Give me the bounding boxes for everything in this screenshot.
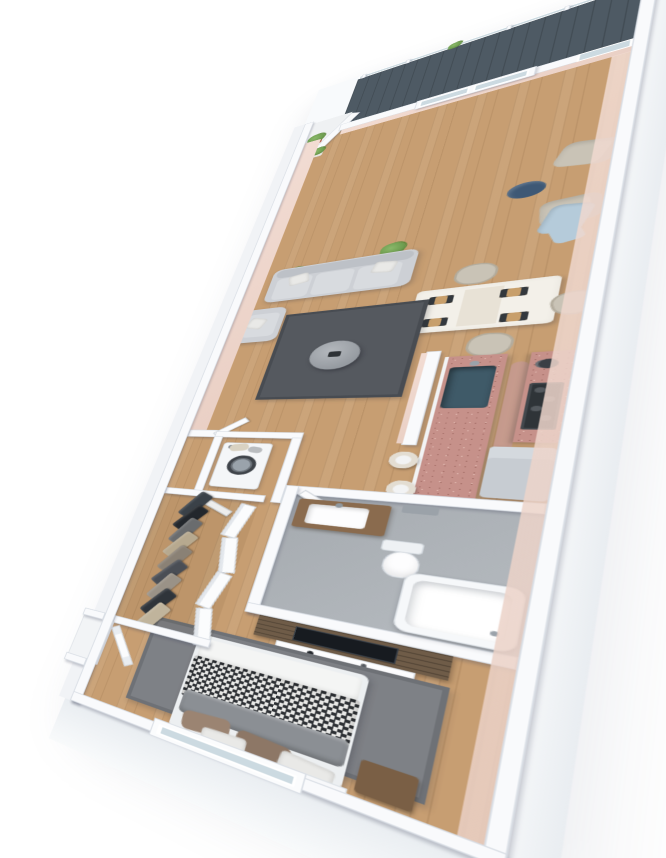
island-sink [440, 365, 497, 408]
apartment-plan [70, 0, 660, 858]
closet-bifold-door[interactable] [218, 537, 238, 573]
floorplan-stage: 3D isometric floor plan of a one-bedroom… [0, 0, 666, 858]
